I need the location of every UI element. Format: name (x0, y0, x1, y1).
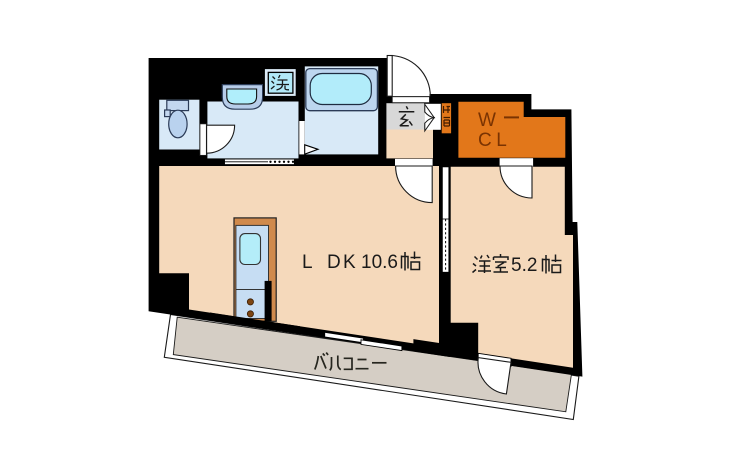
svg-text:W: W (478, 110, 496, 131)
svg-text:K: K (343, 252, 356, 273)
svg-text:5.2: 5.2 (511, 255, 537, 276)
svg-text:L: L (302, 252, 313, 273)
svg-text:10.6: 10.6 (361, 252, 398, 273)
svg-text:CL: CL (478, 130, 511, 151)
svg-text:D: D (327, 252, 341, 273)
